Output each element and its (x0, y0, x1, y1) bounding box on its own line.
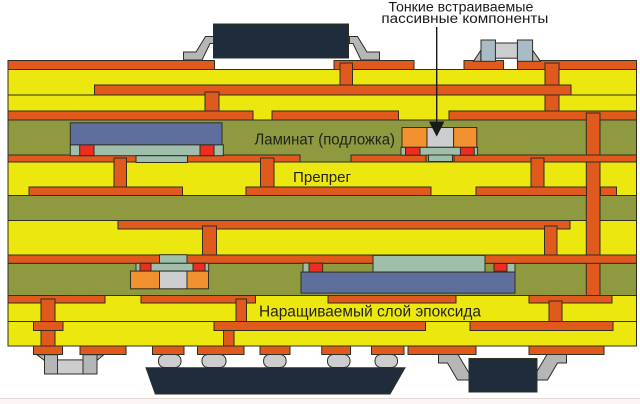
svg-text:Ламинат (подложка): Ламинат (подложка) (255, 132, 396, 149)
svg-text:Наращиваемый слой эпоксида: Наращиваемый слой эпоксида (259, 304, 481, 321)
svg-text:пассивные компоненты: пассивные компоненты (381, 11, 548, 26)
svg-text:Препрег: Препрег (293, 169, 351, 186)
